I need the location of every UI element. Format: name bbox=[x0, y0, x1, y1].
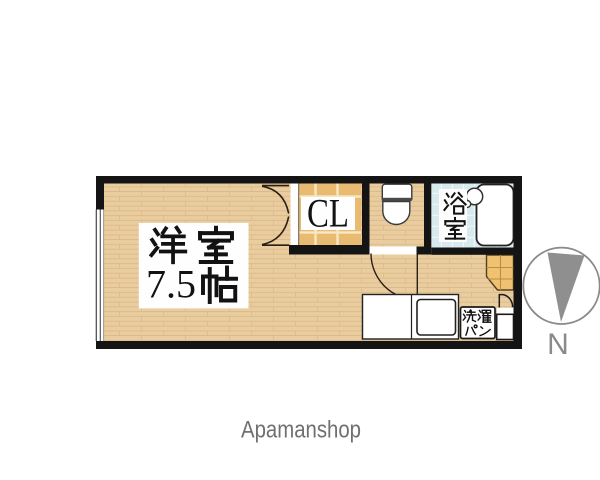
svg-text:7.5: 7.5 bbox=[146, 262, 196, 307]
svg-text:CL: CL bbox=[307, 191, 349, 236]
svg-text:N: N bbox=[547, 328, 569, 361]
svg-text:Apamanshop: Apamanshop bbox=[241, 417, 361, 444]
